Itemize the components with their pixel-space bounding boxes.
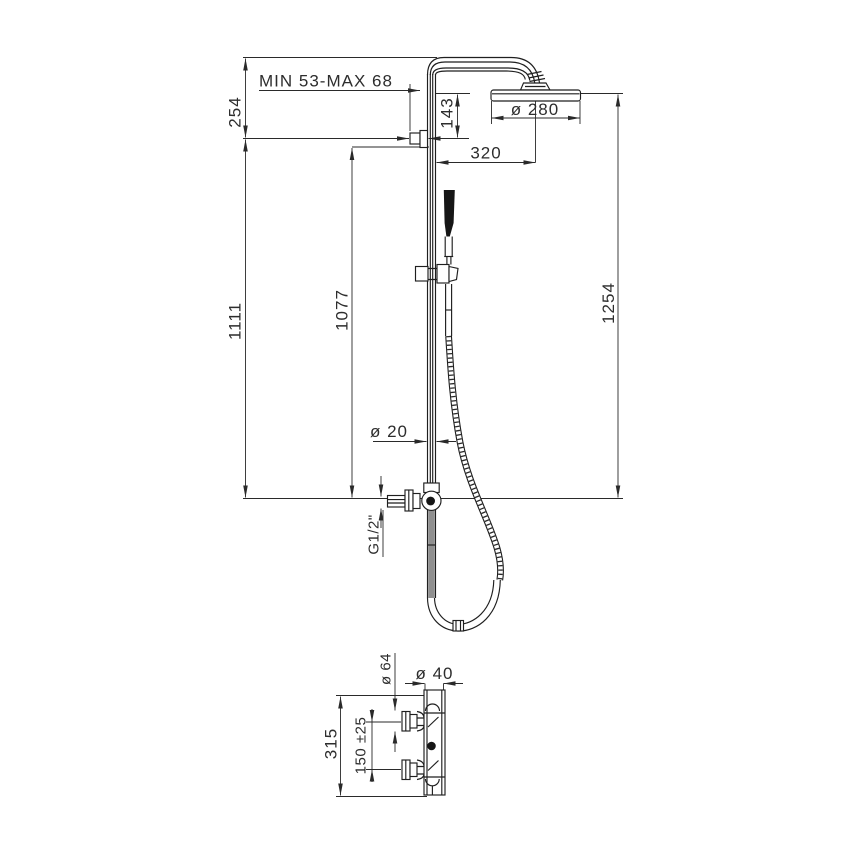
mixer-side-view	[402, 690, 445, 795]
technical-drawing-svg: MIN 53-MAX 68 254 143 ø 280 320 1111 107…	[0, 0, 850, 850]
dim-label-g12: G1/2"	[366, 514, 383, 554]
inlet-union-bottom	[402, 760, 424, 780]
wall-union-ball-joint	[388, 483, 442, 511]
dim-label-40: ø 40	[415, 664, 453, 683]
dim-label-1111: 1111	[226, 302, 245, 340]
wall-bracket	[410, 131, 428, 148]
arm-swivel-joint	[521, 72, 551, 91]
dim-label-64: ø 64	[378, 653, 395, 685]
drawing-canvas: MIN 53-MAX 68 254 143 ø 280 320 1111 107…	[0, 0, 850, 850]
dim-label-143: 143	[438, 97, 457, 128]
shower-hose	[428, 284, 501, 631]
dim-label-bracket-range: MIN 53-MAX 68	[259, 72, 393, 91]
dim-label-150: 150 ±25	[353, 717, 370, 775]
dim-label-1254: 1254	[599, 282, 618, 324]
dimension-labels: MIN 53-MAX 68 254 143 ø 280 320 1111 107…	[226, 72, 619, 775]
dim-label-280: ø 280	[511, 100, 559, 119]
dim-label-315: 315	[322, 728, 341, 759]
fixture-outline	[388, 58, 581, 796]
mixer-knob-dot	[427, 742, 436, 751]
dim-label-1077: 1077	[333, 289, 352, 331]
dim-label-254: 254	[226, 96, 245, 127]
hose-connector	[453, 621, 464, 632]
inlet-union-top	[402, 712, 424, 732]
dim-label-320: 320	[470, 144, 501, 163]
hand-shower-holder	[416, 265, 459, 284]
hand-shower	[444, 190, 455, 265]
dim-label-20: ø 20	[370, 422, 408, 441]
